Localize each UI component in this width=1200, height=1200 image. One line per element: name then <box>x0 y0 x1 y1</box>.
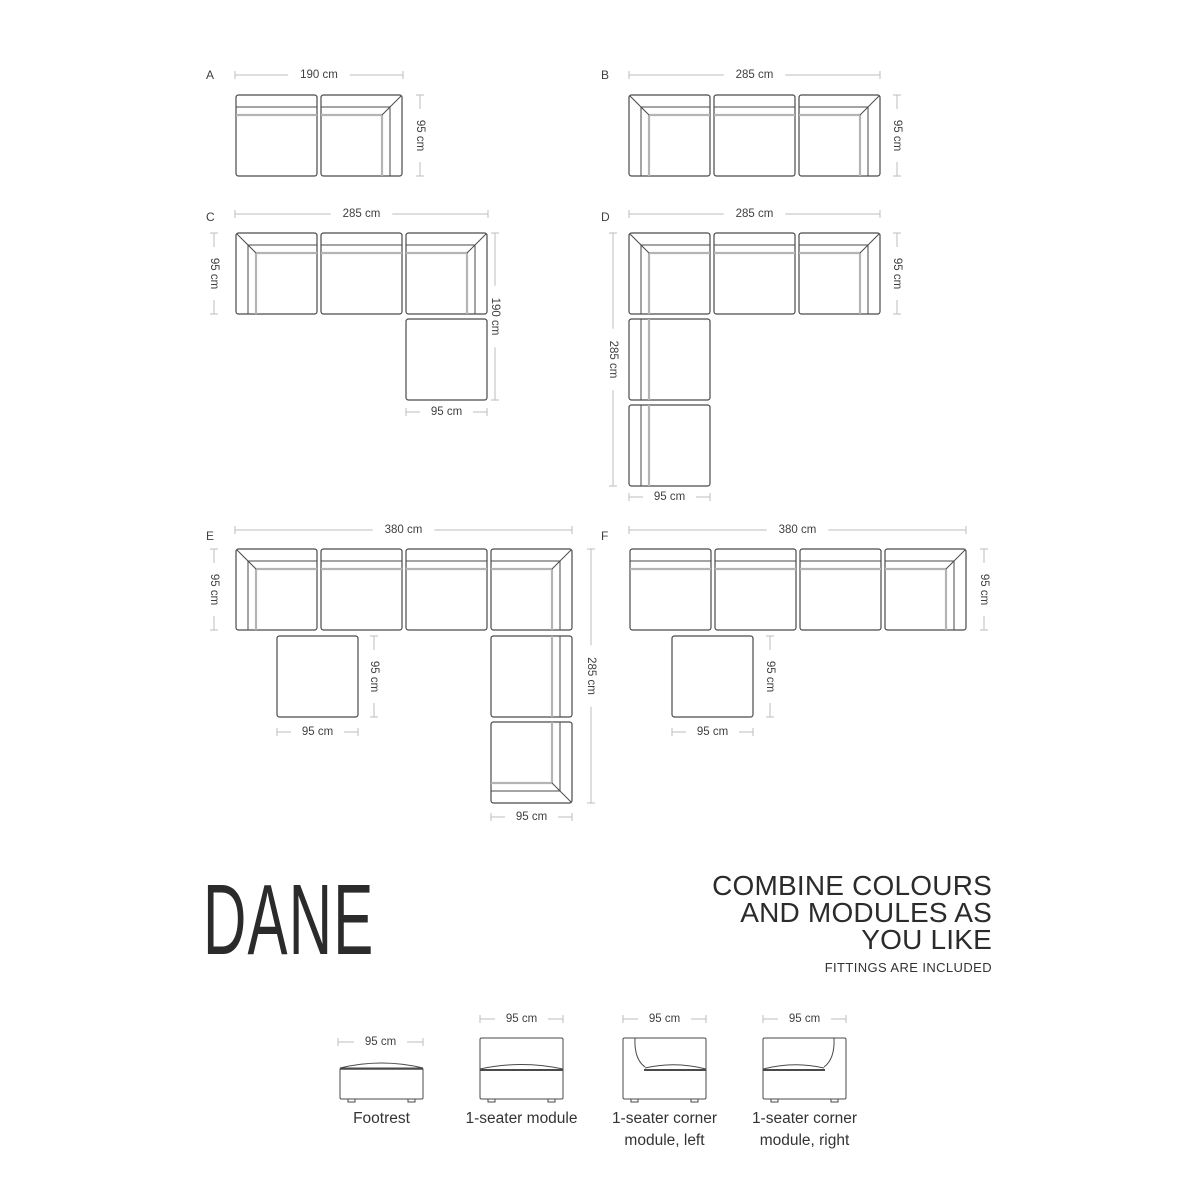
dimension-label: 95 cm <box>302 726 333 738</box>
backrest-line <box>799 245 868 314</box>
config-letter: E <box>206 529 214 543</box>
dimension-label: 95 cm <box>431 406 462 418</box>
module-foot <box>488 1099 495 1102</box>
dimension-label: 285 cm <box>736 208 774 220</box>
corner-miter <box>237 550 256 569</box>
dimension-label: 95 cm <box>891 120 903 151</box>
page: A190 cm95 cmB285 cm95 cmC285 cm95 cm190 … <box>0 0 1200 1200</box>
backrest-band <box>256 253 317 314</box>
dimension-label: 95 cm <box>208 574 220 605</box>
product-title: DANE <box>203 870 375 970</box>
config-A-diagram: A190 cm95 cm <box>206 68 426 176</box>
backrest-line <box>491 722 560 791</box>
legend-item-footrest-front: 95 cm <box>338 1036 423 1102</box>
backrest-line <box>248 561 317 630</box>
dimension-label: 95 cm <box>516 811 547 823</box>
config-letter: C <box>206 210 215 224</box>
backrest-band <box>406 253 467 314</box>
dimension-label: 95 cm <box>789 1013 820 1025</box>
backrest-band <box>799 253 860 314</box>
dimension-label: 95 cm <box>764 661 776 692</box>
dimension-label: 95 cm <box>208 258 220 289</box>
dimension-label: 95 cm <box>506 1013 537 1025</box>
corner-miter <box>860 96 879 115</box>
corner-miter <box>630 234 649 253</box>
corner-miter <box>237 234 256 253</box>
corner-miter <box>382 96 401 115</box>
cushion-curve <box>645 1065 706 1069</box>
module-top-view-footrest <box>406 319 487 400</box>
dimension-label: 190 cm <box>489 298 501 336</box>
module-foot <box>631 1099 638 1102</box>
backrest-line <box>406 245 475 314</box>
backrest-band <box>799 115 860 176</box>
backrest-line <box>321 107 390 176</box>
backrest-band <box>321 115 382 176</box>
backrest-band <box>491 569 552 630</box>
dimension-label: 285 cm <box>607 341 619 379</box>
dimension-label: 95 cm <box>368 661 380 692</box>
corner-miter <box>946 550 965 569</box>
module-foot <box>691 1099 698 1102</box>
cushion-curve <box>763 1065 824 1069</box>
backrest-line <box>885 561 954 630</box>
cushion-curve <box>340 1063 423 1068</box>
armrest-curve <box>635 1038 645 1067</box>
config-letter: D <box>601 210 610 224</box>
dimension-label: 285 cm <box>736 69 774 81</box>
module-foot <box>548 1099 555 1102</box>
module-foot <box>771 1099 778 1102</box>
corner-miter <box>552 783 571 802</box>
corner-miter <box>552 550 571 569</box>
module-foot <box>348 1099 355 1102</box>
backrest-band <box>885 569 946 630</box>
dimension-label: 285 cm <box>343 208 381 220</box>
legend-label-line-1: 1-seater corner <box>705 1108 905 1130</box>
tagline-line-1: COMBINE COLOURS <box>712 872 992 899</box>
diagram-canvas: A190 cm95 cmB285 cm95 cmC285 cm95 cm190 … <box>0 0 1200 1200</box>
config-C-diagram: C285 cm95 cm190 cm95 cm <box>206 208 501 418</box>
dimension-label: 190 cm <box>300 69 338 81</box>
armrest-curve <box>824 1038 834 1067</box>
legend-item-seat-front: 95 cm <box>480 1013 563 1102</box>
corner-miter <box>630 96 649 115</box>
module-top-view-footrest <box>672 636 753 717</box>
backrest-band <box>256 569 317 630</box>
backrest-line <box>248 245 317 314</box>
corner-miter <box>860 234 879 253</box>
config-D-diagram: D285 cm285 cm95 cm95 cm <box>601 208 903 503</box>
dimension-label: 95 cm <box>414 120 426 151</box>
dimension-label: 95 cm <box>649 1013 680 1025</box>
config-letter: F <box>601 529 608 543</box>
backrest-line <box>641 245 710 314</box>
module-top-view-footrest <box>277 636 358 717</box>
backrest-band <box>491 722 552 783</box>
dimension-label: 380 cm <box>385 524 423 536</box>
backrest-band <box>649 253 710 314</box>
dimension-label: 380 cm <box>779 524 817 536</box>
module-foot <box>408 1099 415 1102</box>
legend-label-line-2: module, right <box>705 1130 905 1152</box>
module-foot <box>831 1099 838 1102</box>
dimension-label: 95 cm <box>365 1036 396 1048</box>
legend-item-corner-left-front: 95 cm <box>623 1013 706 1102</box>
dimension-label: 95 cm <box>697 726 728 738</box>
config-F-diagram: F380 cm95 cm95 cm95 cm <box>601 524 990 738</box>
fittings-note: FITTINGS ARE INCLUDED <box>712 960 992 975</box>
tagline-line-2: AND MODULES AS <box>712 899 992 926</box>
legend-item-label: 1-seater cornermodule, right <box>705 1108 905 1152</box>
backrest-band <box>649 115 710 176</box>
tagline-block: COMBINE COLOURS AND MODULES AS YOU LIKE … <box>712 872 992 975</box>
backrest-line <box>799 107 868 176</box>
config-letter: A <box>206 68 214 82</box>
footrest-body <box>340 1068 423 1099</box>
backrest-line <box>491 561 560 630</box>
config-letter: B <box>601 68 609 82</box>
cushion-curve <box>480 1065 563 1070</box>
dimension-label: 95 cm <box>891 258 903 289</box>
tagline-line-3: YOU LIKE <box>712 926 992 953</box>
dimension-label: 95 cm <box>654 491 685 503</box>
corner-miter <box>467 234 486 253</box>
dimension-label: 95 cm <box>978 574 990 605</box>
config-E-diagram: E380 cm95 cm95 cm95 cm285 cm95 cm <box>206 524 597 823</box>
module-body <box>480 1038 563 1099</box>
backrest-line <box>641 107 710 176</box>
config-B-diagram: B285 cm95 cm <box>601 68 903 176</box>
legend-item-corner-right-front: 95 cm <box>763 1013 846 1102</box>
dimension-label: 285 cm <box>585 657 597 695</box>
